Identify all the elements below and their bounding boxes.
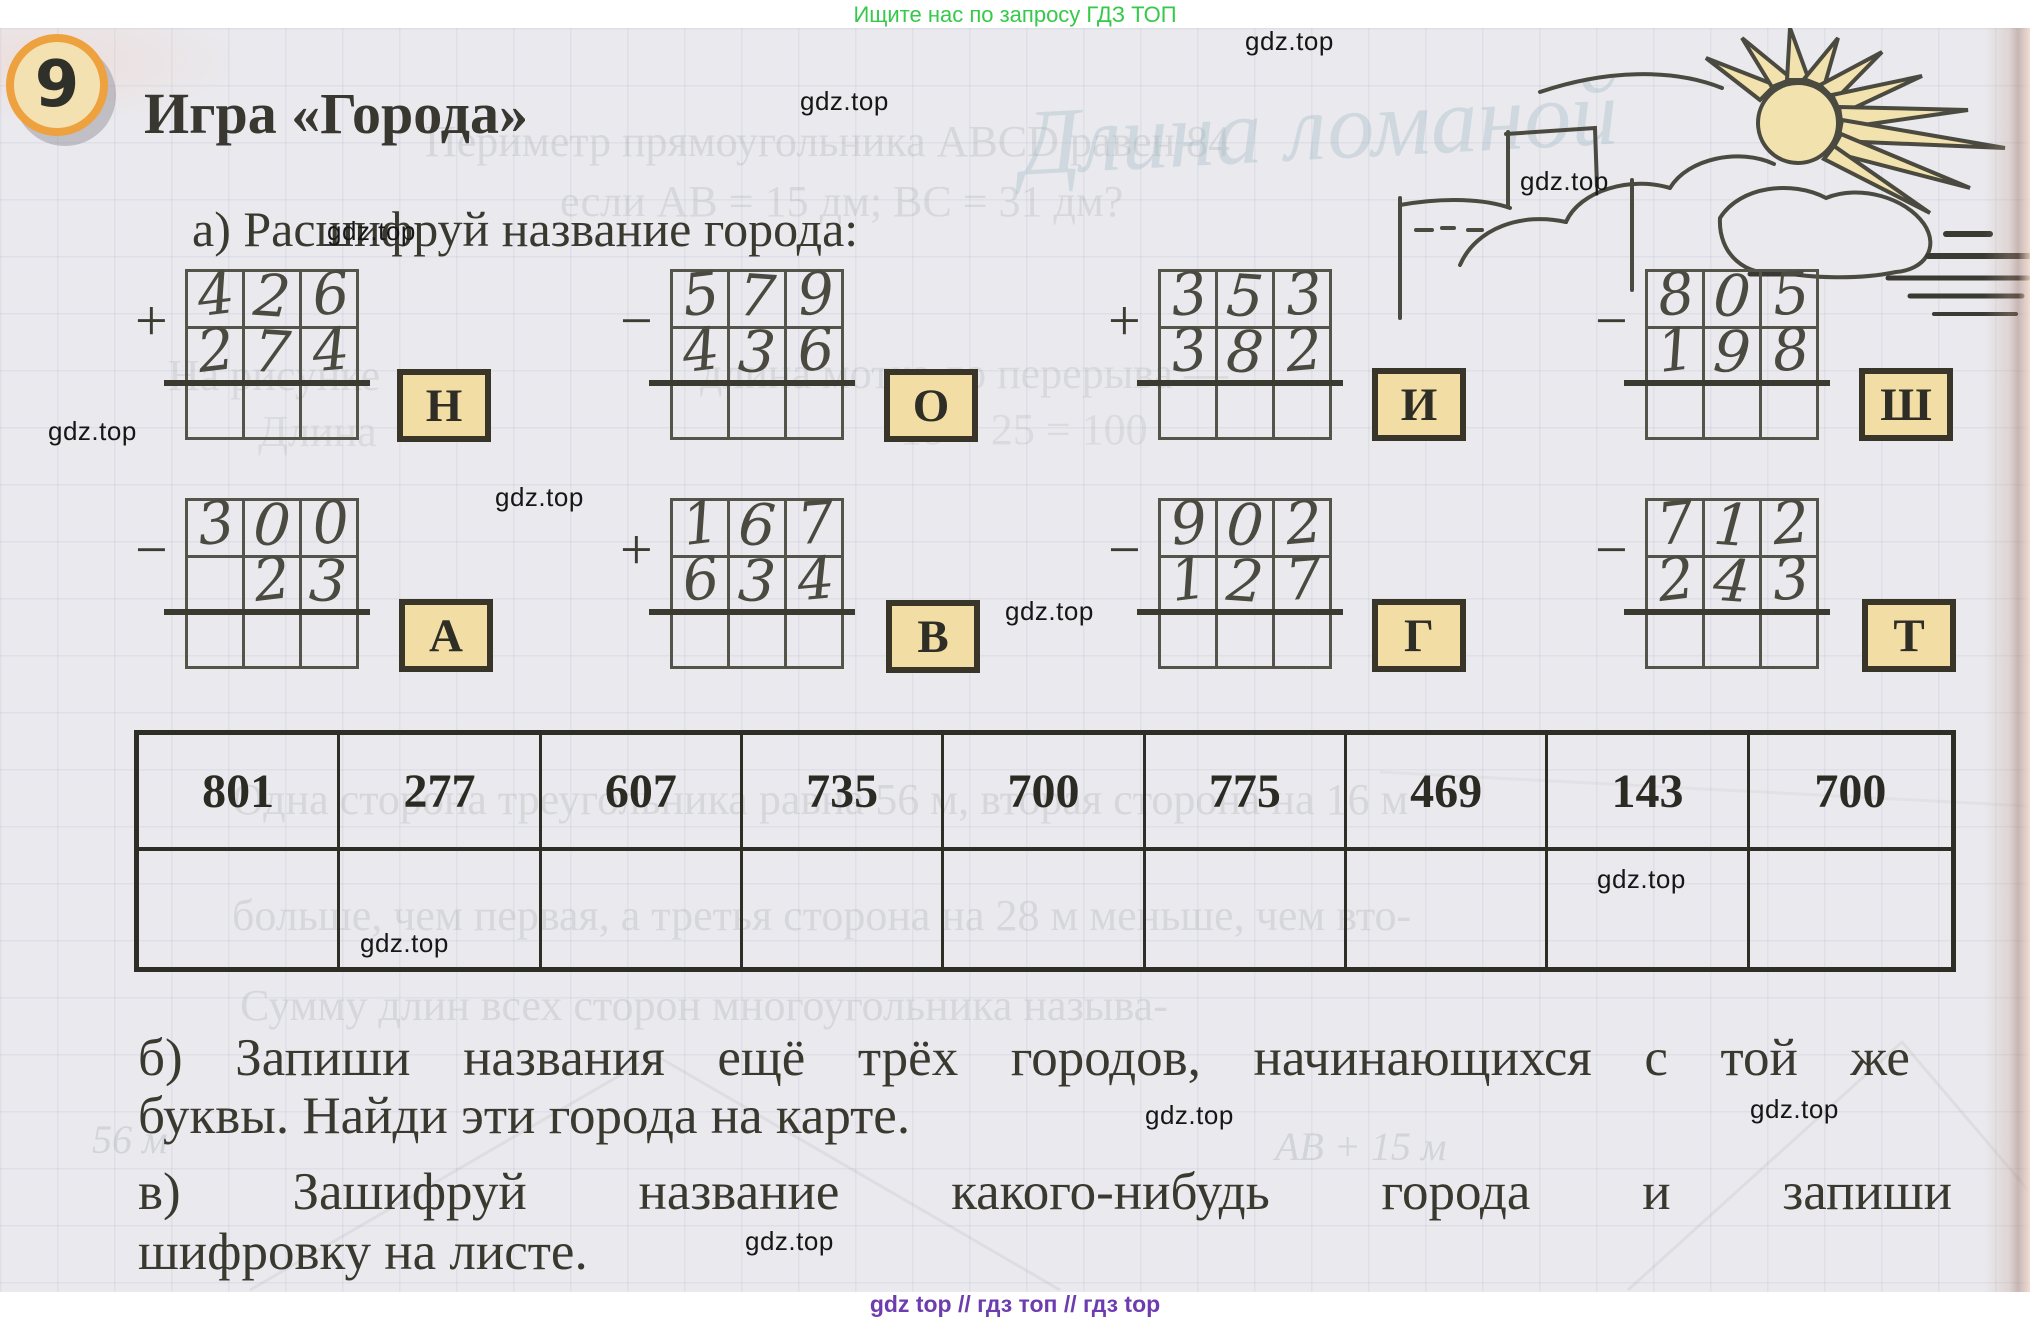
addend-bottom: 634: [673, 553, 841, 610]
minus-operator: −: [1595, 516, 1628, 583]
letter-box-O: О: [884, 369, 978, 442]
watermark: gdz.top: [1005, 596, 1094, 627]
part-b-line1: б)Запишиназванияещётрёхгородов,начинающи…: [138, 1028, 1910, 1088]
empty-answer-cell: [743, 851, 944, 967]
result-line: [1137, 609, 1343, 615]
subtrahend: 127: [1161, 553, 1329, 610]
subtrahend: 23: [188, 553, 356, 610]
handwritten-digit: 3: [1760, 548, 1821, 610]
calc-grid: 805 198: [1645, 269, 1819, 440]
handwritten-digit: 2: [184, 319, 247, 382]
watermark: gdz.top: [360, 928, 449, 959]
watermark: gdz.top: [48, 416, 137, 447]
empty-answer-cell: [1347, 851, 1548, 967]
task-number: 9: [35, 48, 80, 122]
page-curl-edge: [1984, 28, 2030, 1292]
handwritten-digit: 3: [727, 551, 787, 612]
calc-block-I: + 353 382: [1158, 269, 1332, 440]
cipher-letter: Н: [426, 379, 463, 433]
addend-bottom: 382: [1161, 324, 1329, 381]
letter-box-A: А: [399, 599, 493, 672]
handwritten-digit: 0: [300, 492, 361, 554]
table-cell: 700: [1750, 735, 1951, 851]
calc-block-O: − 579 436: [670, 269, 844, 440]
calc-grid: 712 243: [1645, 498, 1819, 669]
calc-grid: 426 274: [185, 269, 359, 440]
letter-box-Sh: Ш: [1859, 368, 1953, 441]
handwritten-digit: 6: [785, 319, 846, 381]
word: в): [138, 1162, 181, 1222]
word: и: [1642, 1162, 1670, 1222]
handwritten-digit: 2: [1215, 551, 1275, 612]
word: той: [1721, 1028, 1798, 1088]
addend-bottom: 274: [188, 324, 356, 381]
calc-block-A: − 300 23: [185, 498, 359, 669]
handwritten-digit: 9: [1702, 322, 1762, 383]
empty-answer-cell: [1146, 851, 1347, 967]
handwritten-digit: 8: [1215, 322, 1275, 383]
plus-operator: +: [135, 287, 168, 354]
plus-operator: +: [620, 516, 653, 583]
cipher-letter: Г: [1404, 609, 1434, 663]
watermark: gdz.top: [1597, 864, 1686, 895]
result-line: [1137, 380, 1343, 386]
textbook-page-scan: Периметр прямоугольника ABCD равен 84 ес…: [0, 0, 2030, 1320]
watermark: gdz.top: [327, 216, 416, 247]
handwritten-digit: 2: [1273, 319, 1334, 381]
part-a-label: а) Расшифруй название города:: [192, 200, 858, 258]
empty-answer-cell: [1750, 851, 1951, 967]
cipher-letter: О: [913, 379, 950, 433]
table-cell: 735: [743, 735, 944, 851]
handwritten-digit: 3: [184, 492, 247, 555]
handwritten-digit: 2: [240, 548, 303, 611]
task-title: Игра «Города»: [144, 80, 528, 147]
table-cell: 277: [340, 735, 541, 851]
word: городов,: [1011, 1028, 1201, 1088]
cipher-letter: Ш: [1880, 378, 1932, 432]
handwritten-digit: 7: [242, 322, 302, 383]
handwritten-digit: 7: [1273, 548, 1334, 610]
handwritten-digit: 2: [1644, 548, 1707, 611]
calc-block-N: + 426 274: [185, 269, 359, 440]
minus-operator: −: [135, 516, 168, 583]
word: же: [1850, 1028, 1909, 1088]
sun-rays-icon: [1706, 28, 2005, 213]
cipher-letter: И: [1401, 378, 1438, 432]
empty-answer-cell: [542, 851, 743, 967]
watermark: gdz.top: [1245, 26, 1334, 57]
handwritten-digit: 1: [1644, 319, 1707, 382]
word: какого-нибудь: [951, 1162, 1270, 1222]
part-v-line1: в)Зашифруйназваниекакого-нибудьгородаиза…: [138, 1162, 1952, 1222]
result-line: [164, 609, 370, 615]
handwritten-digit: 3: [1157, 319, 1220, 382]
part-b-line2: буквы. Найди эти города на карте.: [138, 1086, 910, 1146]
result-line: [649, 609, 855, 615]
word: трёх: [858, 1028, 958, 1088]
calc-block-T: − 712 243: [1645, 498, 1819, 669]
subtrahend: 436: [673, 324, 841, 381]
cipher-letter: Т: [1893, 609, 1924, 663]
watermark: gdz.top: [495, 482, 584, 513]
letter-box-G: Г: [1372, 599, 1466, 672]
subtrahend: 198: [1648, 324, 1816, 381]
letter-box-V: В: [886, 600, 980, 673]
handwritten-digit: 1: [1157, 548, 1220, 611]
word: название: [638, 1162, 839, 1222]
task-number-badge: 9: [6, 34, 108, 136]
letter-box-I: И: [1372, 368, 1466, 441]
watermark: gdz.top: [1145, 1100, 1234, 1131]
word: с: [1644, 1028, 1668, 1088]
word: ещё: [717, 1028, 805, 1088]
handwritten-digit: 3: [298, 551, 358, 612]
footer-links: gdz top // гдз топ // гдз top: [870, 1291, 1160, 1318]
watermark: gdz.top: [1750, 1094, 1839, 1125]
word: названия: [463, 1028, 665, 1088]
subtrahend: 243: [1648, 553, 1816, 610]
handwritten-digit: 8: [1760, 319, 1821, 381]
calc-grid: 167 634: [670, 498, 844, 669]
promo-banner: Ищите нас по запросу ГДЗ ТОП: [853, 2, 1176, 28]
result-line: [1624, 380, 1830, 386]
table-cell: 700: [944, 735, 1145, 851]
handwritten-digit: 4: [300, 319, 361, 381]
word: б): [138, 1028, 183, 1088]
result-line: [1624, 609, 1830, 615]
calc-block-Sh: − 805 198: [1645, 269, 1819, 440]
word: начинающихся: [1254, 1028, 1592, 1088]
calc-block-V: + 167 634: [670, 498, 844, 669]
calc-grid: 353 382: [1158, 269, 1332, 440]
minus-operator: −: [620, 287, 653, 354]
table-cell: 775: [1146, 735, 1347, 851]
result-line: [164, 380, 370, 386]
result-line: [649, 380, 855, 386]
calc-grid: 300 23: [185, 498, 359, 669]
table-cell: 469: [1347, 735, 1548, 851]
calc-grid: 579 436: [670, 269, 844, 440]
calc-block-G: − 902 127: [1158, 498, 1332, 669]
word: города: [1382, 1162, 1531, 1222]
table-cell: 801: [139, 735, 340, 851]
plus-operator: +: [1108, 287, 1141, 354]
word: Зашифруй: [292, 1162, 526, 1222]
letter-box-T: Т: [1862, 599, 1956, 672]
handwritten-digit: 6: [669, 548, 732, 611]
table-cell: 143: [1548, 735, 1749, 851]
word: Запиши: [235, 1028, 410, 1088]
handwritten-digit: 3: [727, 322, 787, 383]
watermark: gdz.top: [800, 86, 889, 117]
table-cell: 607: [542, 735, 743, 851]
calc-grid: 902 127: [1158, 498, 1332, 669]
sun-icon: [1758, 83, 1838, 163]
handwritten-digit: 4: [669, 319, 732, 382]
watermark: gdz.top: [745, 1226, 834, 1257]
watermark: gdz.top: [1520, 166, 1609, 197]
letter-box-N: Н: [397, 369, 491, 442]
part-v-line2: шифровку на листе.: [138, 1222, 588, 1282]
minus-operator: −: [1595, 287, 1628, 354]
empty-answer-cell: [139, 851, 340, 967]
empty-answer-cell: [944, 851, 1145, 967]
handwritten-digit: 4: [1702, 551, 1762, 612]
minus-operator: −: [1108, 516, 1141, 583]
cipher-letter: В: [917, 610, 948, 664]
cipher-letter: А: [429, 609, 463, 663]
word: запиши: [1782, 1162, 1952, 1222]
handwritten-digit: 4: [785, 548, 846, 610]
